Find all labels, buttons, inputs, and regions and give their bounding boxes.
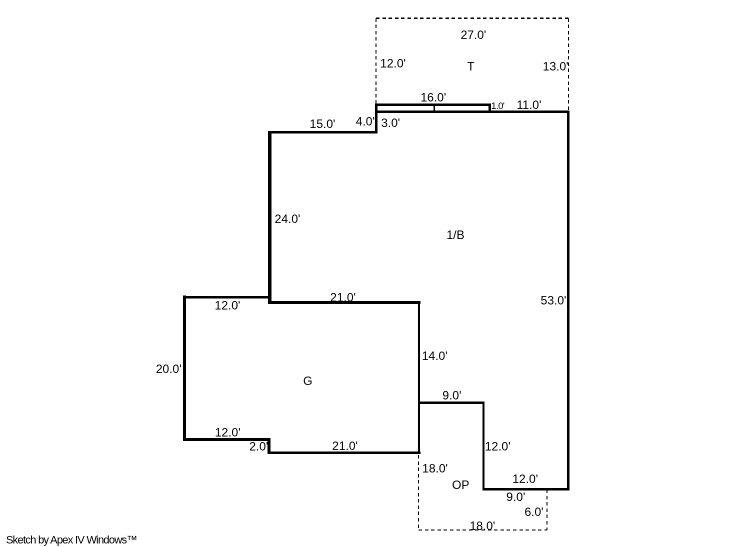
svg-text:OP: OP xyxy=(452,478,469,492)
svg-text:27.0': 27.0' xyxy=(461,28,487,42)
svg-text:9.0': 9.0' xyxy=(442,389,461,403)
svg-text:18.0': 18.0' xyxy=(470,519,496,533)
svg-text:13.0': 13.0' xyxy=(543,59,569,73)
svg-text:14.0': 14.0' xyxy=(422,349,448,363)
svg-text:12.0': 12.0' xyxy=(215,425,241,439)
svg-text:1.0': 1.0' xyxy=(491,101,505,112)
svg-text:18.0': 18.0' xyxy=(422,461,448,475)
svg-text:21.0': 21.0' xyxy=(330,290,356,304)
svg-text:12.0': 12.0' xyxy=(380,57,406,71)
svg-text:20.0': 20.0' xyxy=(156,362,182,376)
svg-text:11.0': 11.0' xyxy=(517,98,542,112)
svg-text:G: G xyxy=(303,374,312,388)
svg-text:2.0': 2.0' xyxy=(249,439,268,453)
svg-text:15.0': 15.0' xyxy=(310,117,336,131)
svg-text:16.0': 16.0' xyxy=(420,91,446,105)
svg-text:12.0': 12.0' xyxy=(215,298,241,312)
svg-text:6.0': 6.0' xyxy=(525,505,544,519)
svg-text:24.0': 24.0' xyxy=(275,212,301,226)
svg-text:1/B: 1/B xyxy=(446,228,464,242)
svg-text:9.0': 9.0' xyxy=(506,490,525,504)
svg-text:12.0': 12.0' xyxy=(485,439,511,453)
svg-text:12.0': 12.0' xyxy=(512,472,538,486)
svg-text:3.0': 3.0' xyxy=(381,116,400,130)
svg-text:53.0': 53.0' xyxy=(541,294,567,308)
svg-text:T: T xyxy=(467,59,475,73)
svg-text:21.0': 21.0' xyxy=(332,439,358,453)
svg-text:Sketch by Apex IV Windows™: Sketch by Apex IV Windows™ xyxy=(6,535,137,547)
svg-text:4.0': 4.0' xyxy=(356,114,375,128)
